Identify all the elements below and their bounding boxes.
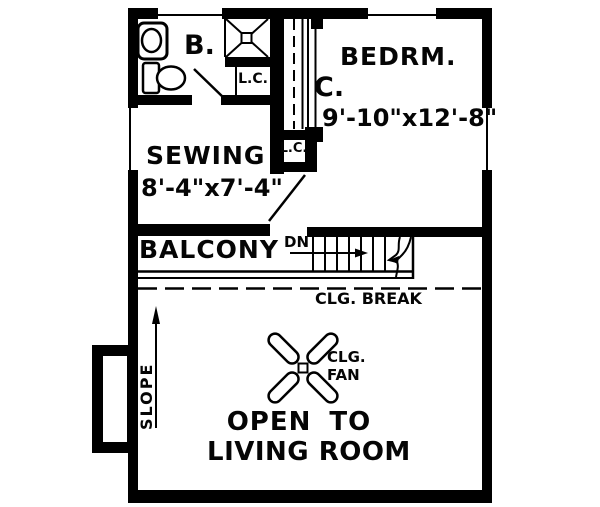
sink-icon (138, 23, 167, 59)
ceiling-fan-label-line2: FAN (327, 368, 360, 383)
ceiling-fan-label-line1: CLG. (327, 350, 366, 365)
stair-direction-label: DN (284, 235, 309, 250)
bedroom-dimensions: 9'-10"x12'-8" (322, 106, 497, 130)
open-to-living-line2: LIVING ROOM (207, 439, 407, 465)
linen-closet-upper-label: L.C. (236, 72, 270, 86)
shower-icon (225, 19, 268, 57)
open-to-living-line1: OPEN TO (199, 409, 399, 435)
floor-plan: B. BEDRM. 9'-10"x12'-8" C. L.C. L.C. SEW… (0, 0, 600, 507)
sewing-label: SEWING (146, 143, 265, 168)
ceiling-break-label: CLG. BREAK (315, 291, 422, 307)
door-swing-icon (194, 69, 226, 100)
shower-drain (242, 33, 252, 43)
sewing-dimensions: 8'-4"x7'-4" (141, 176, 283, 200)
bedroom-label: BEDRM. (340, 44, 457, 69)
slope-label: SLOPE (139, 363, 155, 430)
closet-door-icon (294, 19, 316, 129)
balcony-rail (138, 272, 413, 279)
closet-label: C. (314, 74, 344, 101)
linen-closet-lower-label: L.C. (278, 142, 309, 155)
bathroom-label: B. (184, 32, 215, 59)
balcony-label: BALCONY (139, 237, 279, 262)
toilet-icon (143, 63, 185, 93)
